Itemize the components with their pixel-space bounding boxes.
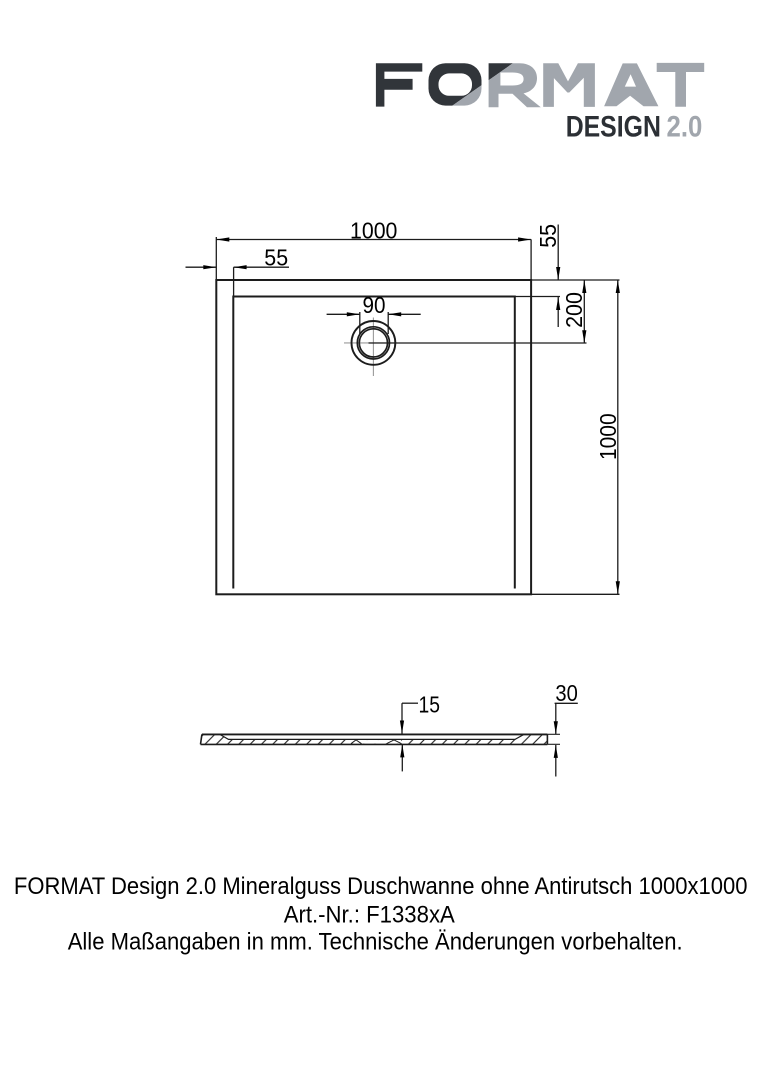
svg-text:1000: 1000 [350,217,397,243]
svg-text:FORMAT Design 2.0 Mineralguss: FORMAT Design 2.0 Mineralguss Duschwanne… [14,873,748,900]
svg-text:Art.-Nr.: F1338xA: Art.-Nr.: F1338xA [284,902,455,929]
svg-text:1000: 1000 [595,413,621,460]
svg-text:Alle Maßangaben in mm. Technis: Alle Maßangaben in mm. Technische Änderu… [68,929,683,956]
svg-text:55: 55 [264,244,288,270]
svg-text:90: 90 [363,292,386,318]
svg-text:30: 30 [555,680,577,706]
svg-text:55: 55 [535,224,561,248]
svg-text:2.0: 2.0 [667,111,703,144]
svg-text:DESIGN: DESIGN [566,111,661,144]
svg-text:200: 200 [561,292,587,328]
svg-text:15: 15 [419,691,441,717]
